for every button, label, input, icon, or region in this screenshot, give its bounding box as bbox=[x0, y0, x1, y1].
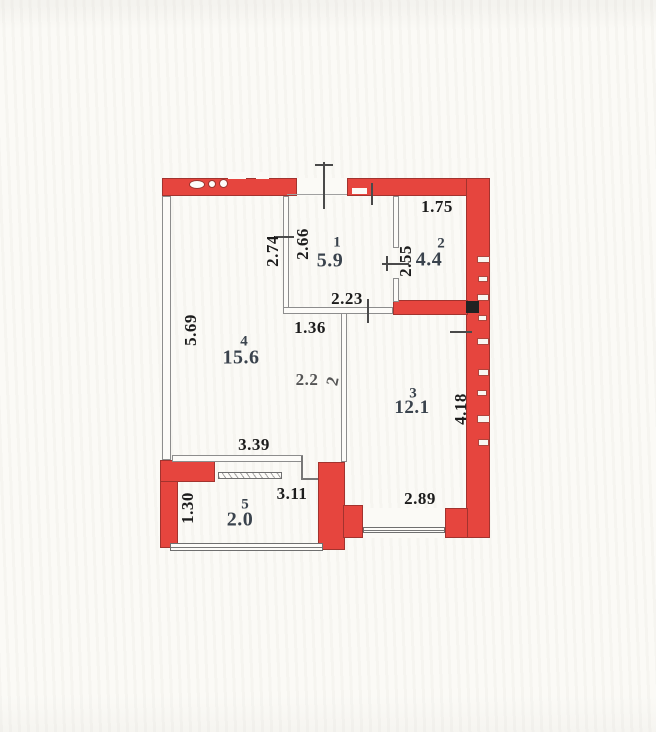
dim-room1-width: 2.23 bbox=[331, 289, 363, 309]
room-3-area: 12.1 bbox=[394, 397, 429, 419]
wall-room4-bottom bbox=[172, 455, 303, 462]
floor-plan-image: 1 5.9 2 4.4 3 12.1 4 15.6 5 2.0 1.75 2.7… bbox=[0, 0, 656, 732]
wall-bottom-right bbox=[445, 508, 468, 538]
entrance-threshold-line bbox=[287, 194, 347, 195]
window-room4-balcony bbox=[218, 472, 282, 479]
wall-bottom-left-horizontal bbox=[160, 460, 215, 482]
wall-notch bbox=[256, 172, 269, 179]
step-line-vertical bbox=[301, 456, 303, 480]
window-room3 bbox=[363, 527, 445, 533]
window-balcony-bottom bbox=[170, 543, 323, 551]
shaft-mark bbox=[477, 390, 487, 396]
dim-room4-upper-h: 2.74 bbox=[263, 235, 283, 267]
dim-room2-width: 1.75 bbox=[421, 197, 453, 217]
room-2-area: 4.4 bbox=[416, 249, 443, 272]
dim-passage-width: 1.36 bbox=[294, 318, 326, 338]
dim-balcony-inner-w: 3.11 bbox=[277, 484, 308, 504]
section-line bbox=[323, 162, 325, 209]
shaft-mark bbox=[477, 256, 490, 263]
dim-room4-width: 3.39 bbox=[238, 435, 270, 455]
wall-mid-step bbox=[343, 505, 363, 538]
section-line-top-tick bbox=[315, 164, 333, 166]
wall-vent-hole bbox=[219, 179, 228, 188]
shaft-mark bbox=[478, 315, 487, 321]
dim-room4-height: 5.69 bbox=[181, 314, 201, 346]
wall-room2-left-lower bbox=[393, 278, 399, 302]
dim-tick bbox=[386, 256, 388, 271]
wall-mid-vertical bbox=[318, 462, 345, 550]
wall-left-outer bbox=[162, 196, 171, 460]
dim-tick bbox=[371, 183, 373, 205]
wall-room2-bottom bbox=[393, 300, 468, 315]
shaft-mark bbox=[478, 369, 489, 376]
shaft-mark bbox=[477, 415, 490, 423]
wall-notch bbox=[228, 172, 246, 179]
shaft-mark bbox=[477, 294, 489, 301]
window-room3-opening bbox=[363, 508, 445, 538]
room-4-area: 15.6 bbox=[223, 347, 260, 370]
step-line-horizontal bbox=[301, 478, 318, 480]
wall-notch bbox=[352, 188, 367, 194]
dim-room2-height: 2.55 bbox=[396, 245, 416, 277]
shaft-mark bbox=[478, 439, 489, 446]
wall-room2-left-upper bbox=[393, 196, 399, 248]
wall-top-left bbox=[162, 178, 297, 196]
wall-vent-oval bbox=[189, 180, 205, 189]
wall-room1-left bbox=[283, 196, 289, 313]
wall-room3-room4-divider bbox=[341, 313, 347, 462]
shaft-mark bbox=[477, 338, 489, 345]
room-1-area: 5.9 bbox=[317, 250, 344, 273]
wall-right bbox=[466, 178, 490, 538]
dim-balcony-height: 1.30 bbox=[178, 492, 198, 524]
wall-vent-hole bbox=[208, 180, 216, 188]
dim-room3-width: 2.89 bbox=[404, 489, 436, 509]
room-5-area: 2.0 bbox=[227, 509, 254, 532]
dim-mid: 2.2 bbox=[296, 370, 319, 390]
shaft-mark bbox=[478, 276, 488, 282]
dim-tick bbox=[367, 299, 369, 323]
dim-room1-height: 2.66 bbox=[293, 228, 313, 260]
dim-room3-height: 4.18 bbox=[451, 393, 471, 425]
dim-tick bbox=[450, 331, 472, 333]
shaft-square-marker bbox=[466, 301, 479, 313]
